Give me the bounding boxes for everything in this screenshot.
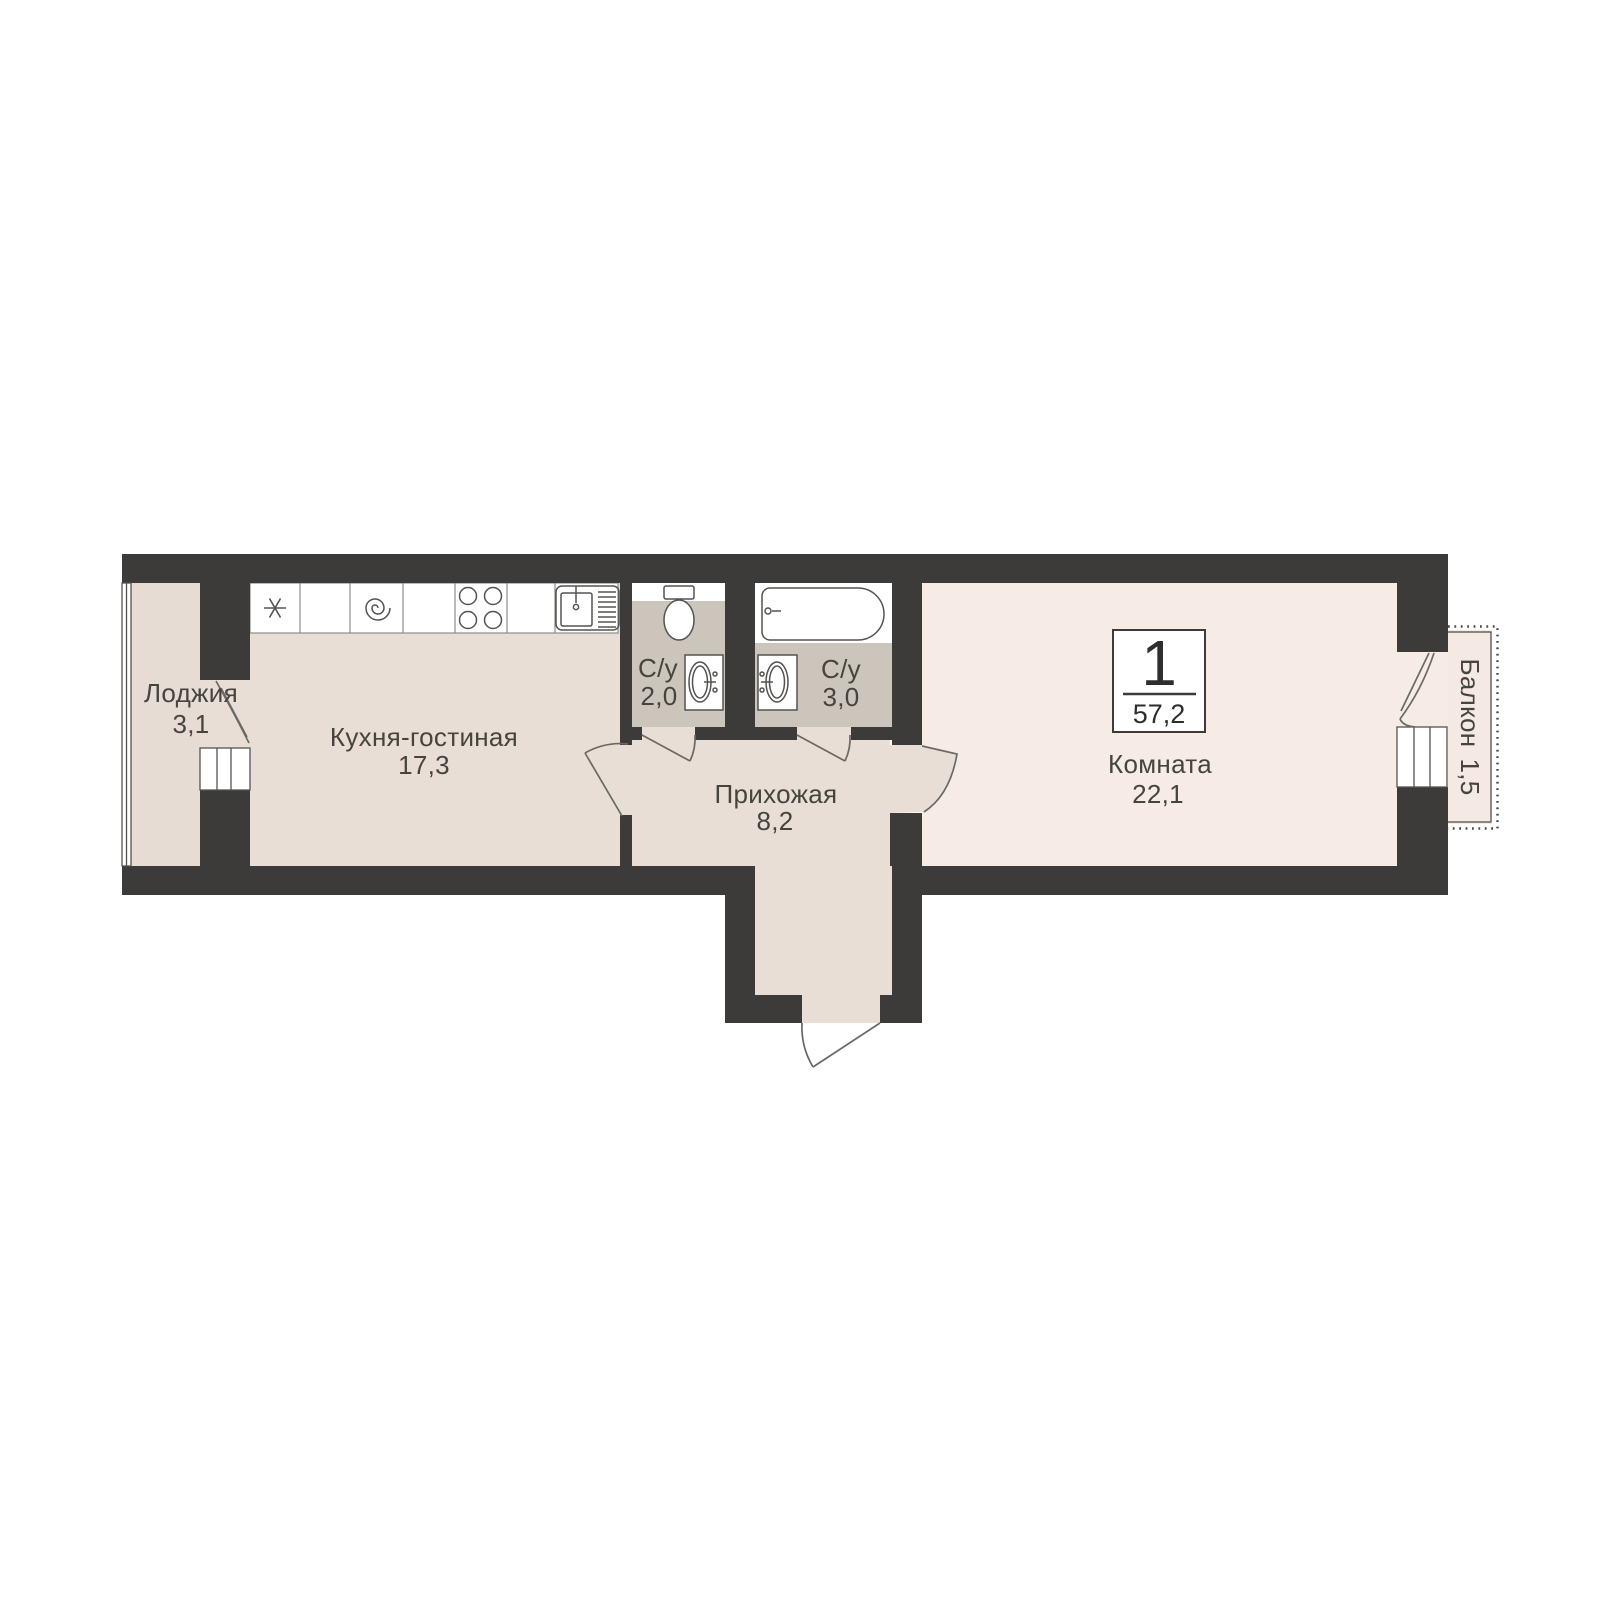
bath1-door-opening bbox=[642, 727, 695, 740]
room-label: Комната bbox=[1108, 749, 1212, 779]
wall-bath2-jamb-right bbox=[851, 727, 892, 740]
floorplan-canvas: Лоджия 3,1 Кухня-гостиная 17,3 С/у 2,0 С… bbox=[0, 0, 1620, 1620]
entry-door-opening bbox=[802, 995, 880, 1023]
bathroom-large-area: 3,0 bbox=[822, 682, 859, 712]
toilet-icon bbox=[664, 586, 694, 640]
vestibule-floor bbox=[755, 866, 892, 995]
apartment-badge: 1 57,2 bbox=[1113, 627, 1205, 732]
wall-right-lower bbox=[1397, 787, 1448, 866]
washbasin-icon bbox=[758, 655, 797, 710]
kitchen-door-opening bbox=[620, 745, 632, 815]
kitchen-counter bbox=[250, 583, 619, 633]
badge-total-area: 57,2 bbox=[1133, 699, 1186, 729]
entry-door bbox=[802, 1023, 880, 1067]
wall-bath1-jamb-right bbox=[695, 727, 725, 740]
wall-vestibule-bottom-left bbox=[755, 995, 802, 1023]
wall-bath1-jamb-left bbox=[632, 727, 642, 740]
wall-loggia-upper bbox=[200, 583, 250, 680]
wall-kitchen-bath bbox=[620, 583, 632, 745]
wall-top-right-corner bbox=[1397, 583, 1448, 652]
badge-room-count: 1 bbox=[1141, 627, 1177, 699]
wall-hall-room-lower bbox=[890, 813, 922, 866]
loggia-kitchen-window bbox=[200, 748, 250, 790]
wall-bottom-right bbox=[922, 866, 1448, 895]
wall-loggia-lower bbox=[200, 790, 250, 866]
wall-vestibule-right bbox=[892, 866, 922, 1023]
loggia-glazing-window bbox=[122, 583, 131, 866]
washbasin-icon bbox=[685, 655, 723, 710]
wall-bath2-jamb-left bbox=[755, 727, 797, 740]
loggia-area: 3,1 bbox=[172, 709, 209, 739]
wall-hall-room-upper bbox=[892, 583, 922, 745]
wall-top bbox=[122, 554, 1448, 583]
bathroom-small-area: 2,0 bbox=[640, 681, 677, 711]
bathroom-large-label: С/у bbox=[821, 654, 861, 684]
bathroom-small-label: С/у bbox=[638, 653, 678, 683]
kitchen-area: 17,3 bbox=[398, 750, 450, 780]
balcony-door-opening bbox=[1397, 652, 1448, 727]
bath2-door-opening bbox=[797, 727, 851, 740]
hallway-label: Прихожая bbox=[715, 779, 838, 809]
wall-bath-divider bbox=[725, 583, 755, 740]
kitchen-label: Кухня-гостиная bbox=[330, 722, 518, 752]
wall-vestibule-left bbox=[725, 895, 755, 1023]
wall-kitchen-hall-stub bbox=[620, 815, 632, 866]
loggia-label: Лоджия bbox=[144, 678, 238, 708]
balcony-window bbox=[1397, 727, 1447, 787]
room-area: 22,1 bbox=[1132, 779, 1184, 809]
floorplan-drawing: Лоджия 3,1 Кухня-гостиная 17,3 С/у 2,0 С… bbox=[0, 0, 1620, 1620]
hallway-area: 8,2 bbox=[756, 806, 793, 836]
wall-bottom-left bbox=[122, 866, 755, 895]
balcony-label: Балкон1,5 bbox=[1455, 658, 1485, 795]
